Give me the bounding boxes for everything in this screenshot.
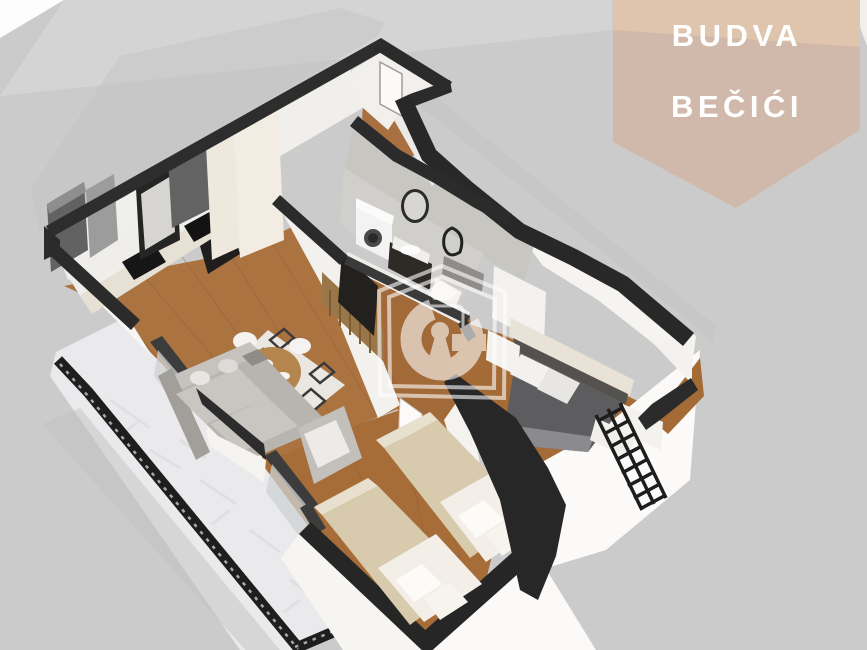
svg-text:BUDVA: BUDVA	[672, 18, 802, 53]
svg-text:BEČIĆI: BEČIĆI	[671, 88, 803, 124]
